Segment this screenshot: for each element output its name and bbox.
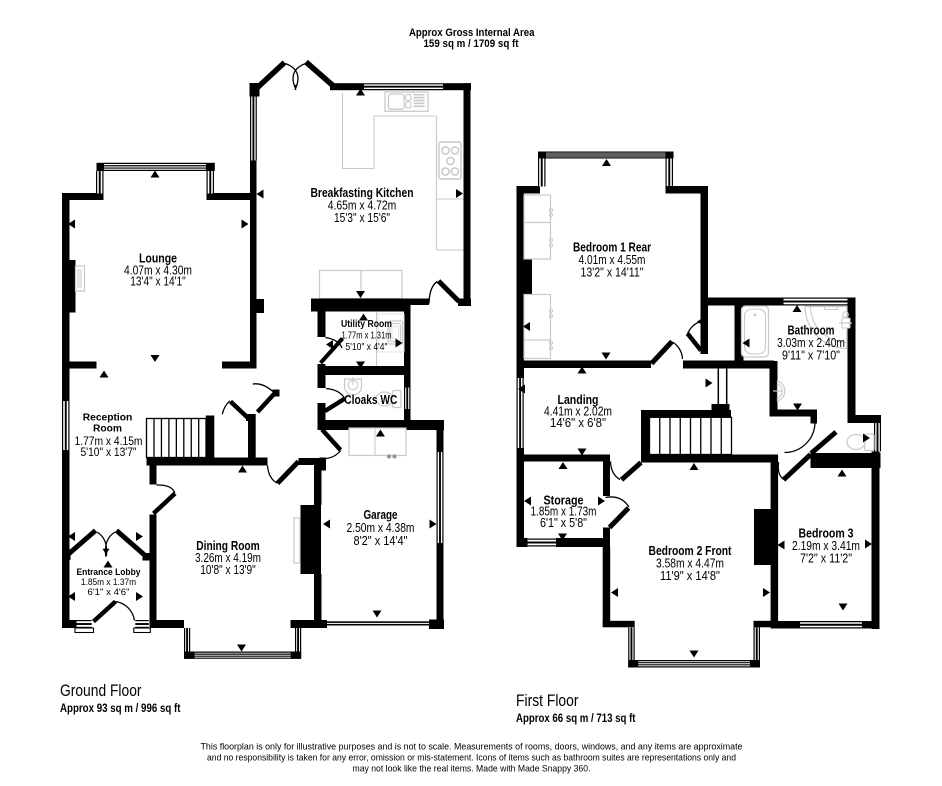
- svg-text:Room: Room: [93, 423, 122, 435]
- svg-text:Approx 66 sq m / 713 sq ft: Approx 66 sq m / 713 sq ft: [516, 713, 636, 725]
- svg-text:This floorplan is only for ill: This floorplan is only for illustrative …: [201, 742, 743, 753]
- svg-text:Approx 93 sq m / 996 sq ft: Approx 93 sq m / 996 sq ft: [60, 703, 181, 715]
- svg-text:159 sq m / 1709 sq ft: 159 sq m / 1709 sq ft: [424, 38, 519, 50]
- svg-text:Ground Floor: Ground Floor: [60, 682, 142, 700]
- svg-text:6'1" x 5'8": 6'1" x 5'8": [540, 515, 587, 530]
- svg-text:1.77m x 1.31m: 1.77m x 1.31m: [342, 331, 392, 342]
- svg-text:14'6" x 6'8": 14'6" x 6'8": [550, 415, 606, 430]
- svg-text:5'10" x 4'4": 5'10" x 4'4": [346, 342, 388, 353]
- svg-text:may not look like the real ite: may not look like the real items. Made w…: [353, 764, 591, 775]
- svg-text:15'3" x 15'6": 15'3" x 15'6": [334, 210, 390, 225]
- svg-text:7'2" x 11'2": 7'2" x 11'2": [800, 551, 852, 566]
- svg-text:6'1" x 4'6": 6'1" x 4'6": [88, 587, 130, 598]
- svg-text:Utility Room: Utility Room: [341, 319, 392, 330]
- svg-text:5'10" x 13'7": 5'10" x 13'7": [81, 445, 137, 459]
- svg-text:8'2" x 14'4": 8'2" x 14'4": [354, 533, 408, 548]
- svg-text:First Floor: First Floor: [516, 692, 579, 710]
- svg-text:13'2" x 14'11": 13'2" x 14'11": [581, 265, 644, 280]
- svg-text:Cloaks WC: Cloaks WC: [344, 392, 397, 407]
- svg-text:9'11" x 7'10": 9'11" x 7'10": [782, 348, 840, 363]
- svg-text:13'4" x 14'1": 13'4" x 14'1": [130, 274, 186, 289]
- svg-text:11'9" x 14'8": 11'9" x 14'8": [660, 568, 720, 583]
- svg-text:and no responsibility is taken: and no responsibility is taken for any e…: [207, 753, 736, 764]
- svg-text:10'8" x 13'9": 10'8" x 13'9": [200, 562, 256, 577]
